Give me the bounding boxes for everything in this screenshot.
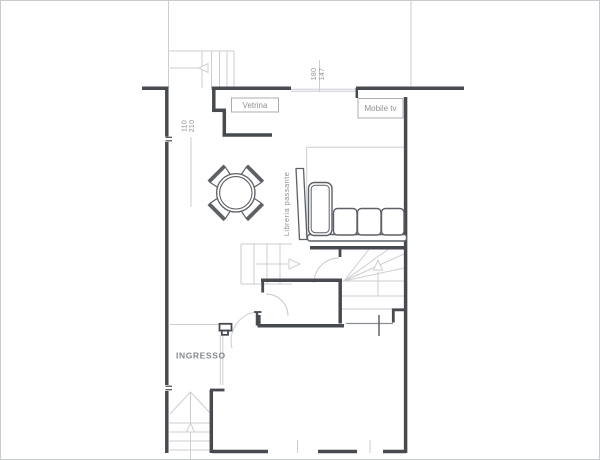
staircase-mid-light: [241, 244, 300, 284]
ingresso-label: INGRESSO: [176, 351, 226, 361]
dim-147: 147: [319, 68, 326, 81]
staircase-lower-treads: [170, 392, 212, 459]
libreria-label: Libreria passante: [282, 172, 291, 236]
dining-set: [209, 166, 263, 220]
storage-door-arc: [266, 294, 288, 316]
bookcase-libreria: [296, 169, 307, 240]
upper-staircase: [170, 51, 227, 88]
sofa-chaise-cushion: [311, 185, 329, 233]
floor-plan-drawing: Vetrina Mobile tv Libreria passante INGR…: [0, 0, 600, 460]
sofa-cushion: [334, 209, 358, 236]
vetrina-label: Vetrina: [243, 101, 268, 110]
stair-threshold: [346, 315, 393, 336]
wall-winder-step: [393, 310, 405, 323]
dining-table: [217, 174, 255, 212]
entrance-jambs: [220, 312, 262, 335]
dim-110: 110: [182, 120, 189, 132]
sofa: [308, 183, 407, 242]
upper-floor-outline: [169, 1, 412, 88]
floor-plan-canvas: Vetrina Mobile tv Libreria passante INGR…: [0, 0, 600, 460]
sofa-cushion: [358, 209, 382, 236]
entrance-door-arc: [231, 312, 256, 348]
dimension-window-left: 110 210: [182, 120, 197, 133]
door-arcs: [231, 258, 339, 348]
dim-180: 180: [311, 68, 318, 81]
mobile-tv-label: Mobile tv: [364, 104, 396, 113]
dimension-window-top: 180 147: [311, 68, 326, 81]
sofa-cushion: [382, 209, 405, 236]
staircase-winder-treads: [342, 248, 404, 309]
entrance-jamb-left: [220, 324, 232, 331]
entrance-jamb-left-lip: [222, 331, 228, 335]
dim-210: 210: [189, 120, 196, 133]
